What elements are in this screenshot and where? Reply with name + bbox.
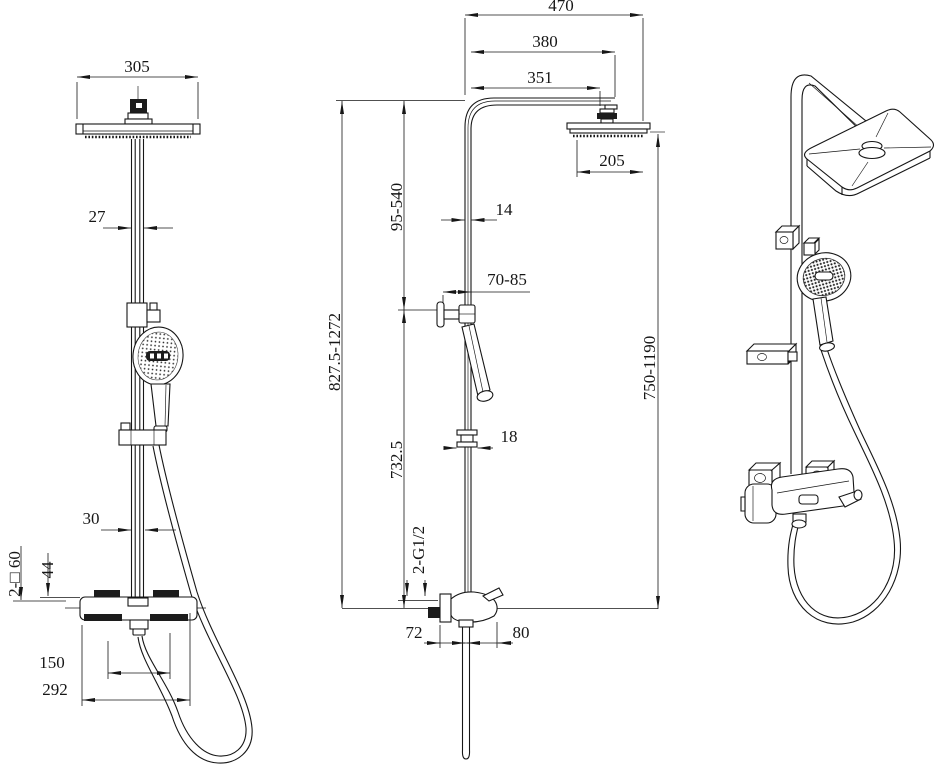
dim-lower-riser: 732.5 [387,441,406,479]
dim-riser-width: 30 [83,509,100,528]
dim-arm-reach: 380 [532,32,558,51]
hand-shower-side [462,324,494,403]
head-connector [125,99,152,124]
hose-outlet-nut [130,620,148,629]
dim-escutcheons: 2-□ 60 [5,551,24,597]
technical-drawing: 305 27 30 44 2-□ 60 150 [0,0,944,768]
dim-slider-depth: 18 [501,427,518,446]
rain-head [76,124,200,137]
head-joint [597,109,617,123]
dim-head-height: 750-1190 [640,336,659,401]
dim-pipe-width: 27 [89,207,107,226]
hand-shower [130,325,186,432]
thermostatic-valve [65,590,206,635]
rain-head-perspective [805,109,934,195]
valve-side [428,588,503,627]
hose-side [462,627,469,759]
dim-riser-to-front: 80 [513,623,530,642]
rain-head-side [567,123,650,136]
wall-inlet [428,607,440,618]
dim-head-depth: 205 [599,151,625,170]
dim-valve-width: 292 [42,680,68,699]
dim-holder-reach: 70-85 [487,270,527,289]
hand-shower-perspective [791,246,856,352]
valve-lever [483,588,503,601]
front-view: 305 27 30 44 2-□ 60 150 [5,57,252,763]
hand-shower-bracket [127,303,160,327]
diverter [437,302,475,327]
side-view: 470 380 351 205 827.5-1272 95-540 732. [325,0,665,759]
slider-clamp-perspective [747,344,797,364]
slider-knob [457,430,477,447]
dim-overall-reach: 470 [548,0,574,15]
dim-valve-height: 44 [38,561,57,579]
perspective-view [741,75,934,624]
dim-head-width: 305 [124,57,150,76]
drawing-canvas: 305 27 30 44 2-□ 60 150 [0,0,944,768]
hand-shower-handle [151,384,170,426]
dim-upper-riser-range: 95-540 [387,183,406,231]
riser-and-arm [465,98,617,597]
dim-riser-depth: 14 [496,200,514,219]
front-geometry [65,86,252,763]
dim-wall-to-riser: 72 [406,623,423,642]
dim-connection-threads: 2-G1/2 [409,526,428,574]
side-dimensions: 470 380 351 205 827.5-1272 95-540 732. [325,0,665,648]
upper-bracket [776,226,819,255]
dim-overall-height: 827.5-1272 [325,313,344,391]
dim-arm-length: 351 [527,68,553,87]
dim-inlet-spacing: 150 [39,653,65,672]
